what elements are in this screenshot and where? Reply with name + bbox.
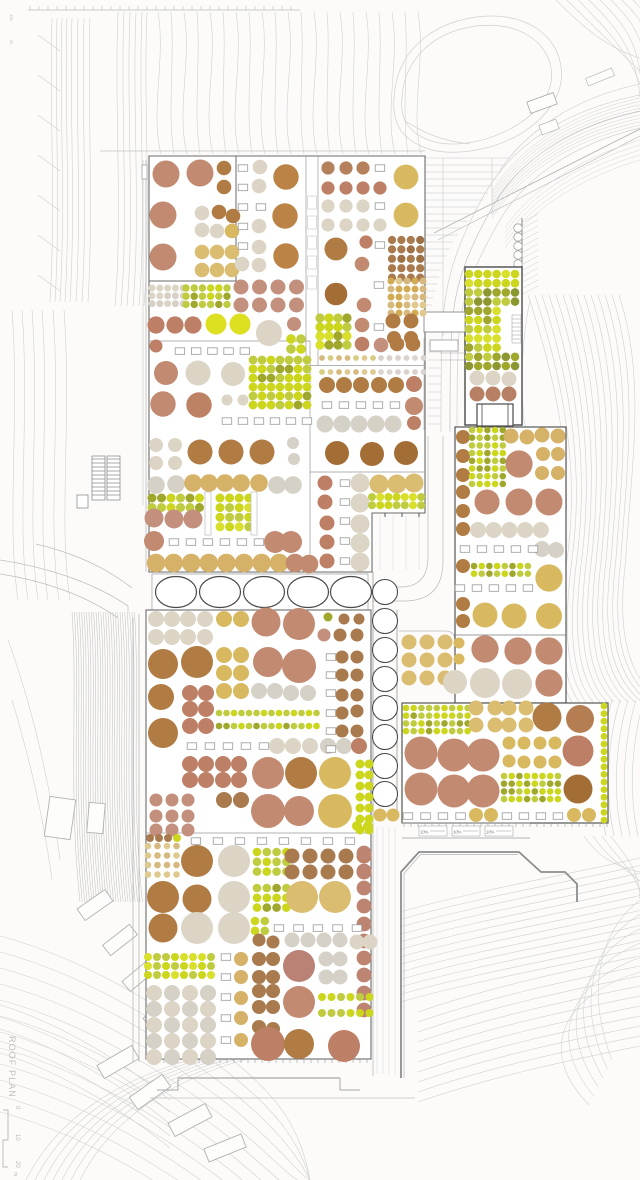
svg-text:ROOF PLAN: ROOF PLAN xyxy=(7,1036,17,1098)
svg-text:10: 10 xyxy=(14,1134,20,1141)
svg-text:10%: 10% xyxy=(453,830,462,835)
svg-text:m: m xyxy=(12,1172,18,1176)
svg-text:10%: 10% xyxy=(486,830,495,835)
svg-text:30: 30 xyxy=(9,40,14,45)
svg-text:20: 20 xyxy=(14,1161,20,1168)
svg-text:435: 435 xyxy=(9,14,14,21)
svg-text:10%: 10% xyxy=(420,830,429,835)
